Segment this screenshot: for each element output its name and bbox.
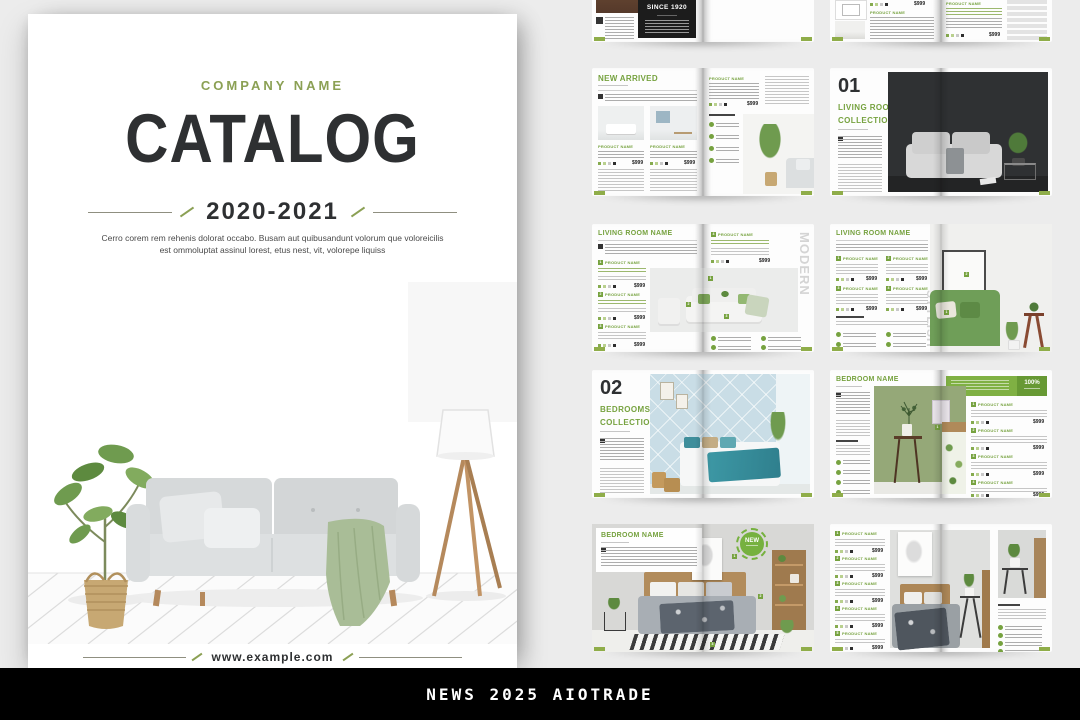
branch-arrangement-shape [896, 398, 922, 426]
bonsai-shape [1006, 132, 1030, 156]
text-placeholder [843, 470, 870, 475]
feature-icon [836, 332, 841, 337]
text-placeholder [843, 333, 876, 337]
product-name-label: PRODUCT NAME [893, 256, 928, 261]
divider-line [657, 15, 677, 16]
feature-icon [711, 336, 716, 341]
color-swatches [836, 278, 856, 281]
cover-website: www.example.com [212, 650, 334, 664]
product-item: 4PRODUCT NAME [886, 286, 928, 291]
text-placeholder [716, 159, 739, 163]
text-placeholder [601, 547, 697, 567]
spread-products-intro: $999 PRODUCT NAME PRODUCT NAME $999 [830, 0, 1052, 42]
price-label: $999 [634, 342, 645, 348]
divider-line [83, 657, 186, 658]
spread-bedrooms-collection: 02 BEDROOMS COLLECTION [592, 370, 814, 498]
pillow-shape [720, 437, 736, 448]
color-swatches [886, 278, 906, 281]
text-placeholder [835, 589, 885, 597]
feature-item [711, 345, 751, 350]
feature-item [886, 342, 926, 347]
product-name-label: PRODUCT NAME [709, 76, 744, 81]
photo-dark-living-room [888, 72, 1048, 192]
feature-item [998, 633, 1042, 638]
website-divider: www.example.com [28, 650, 517, 664]
color-swatches [598, 317, 618, 320]
vase-shape [902, 424, 912, 436]
page-number-tab [832, 647, 843, 651]
product-name-label: PRODUCT NAME [842, 606, 877, 611]
price-label: $999 [872, 573, 883, 579]
feature-item [711, 336, 751, 341]
slash-ornament [191, 653, 202, 662]
photo-bedroom-detail [890, 530, 990, 648]
shelf-line [775, 584, 803, 586]
feature-item [836, 460, 870, 465]
feature-item [709, 122, 739, 127]
price-label: $999 [866, 276, 877, 282]
product-name-label: PRODUCT NAME [978, 402, 1013, 407]
text-placeholder [835, 539, 885, 547]
product-name-label: PRODUCT NAME [842, 631, 877, 636]
text-placeholder [716, 147, 739, 151]
drop-cap [596, 17, 603, 24]
chapter-number: 01 [838, 76, 860, 96]
item-number-badge: 3 [836, 286, 841, 291]
page-number-tab [594, 37, 605, 41]
new-badge-label: NEW [740, 538, 764, 544]
divider-line [88, 212, 172, 213]
side-table-shape [604, 612, 626, 631]
green-pillow-shape [960, 302, 980, 318]
item-number-badge: 1 [835, 531, 840, 536]
shelf-plant-shape [777, 554, 787, 563]
text-placeholder [768, 337, 801, 341]
throw-shape [946, 148, 964, 174]
page-left: LIVING ROOM NAME 1PRODUCT NAME $999 2PRO… [830, 224, 941, 352]
price-label: $999 [866, 306, 877, 312]
product-name-label: PRODUCT NAME [605, 260, 640, 265]
product-item: 1PRODUCT NAME [836, 256, 878, 261]
text-placeholder [843, 490, 870, 495]
page-number-tab [832, 493, 843, 497]
mini-heading [836, 316, 864, 318]
text-placeholder [836, 244, 928, 252]
photo-plant-sofa [743, 114, 814, 194]
divider-line [598, 240, 697, 241]
spread-sheet: SINCE 1920 [592, 0, 814, 42]
color-swatches [711, 260, 731, 263]
page-number-tab [801, 647, 812, 651]
photo-number-badge: 1 [732, 554, 737, 559]
product-name-label: PRODUCT NAME [843, 256, 878, 261]
product-item: 3PRODUCT NAME [835, 581, 877, 586]
photo-sofa-green-accents: 1 2 3 [650, 268, 798, 332]
mini-heading [998, 604, 1020, 606]
text-placeholder [971, 410, 1047, 418]
text-placeholder [1024, 388, 1040, 391]
text-placeholder [768, 346, 801, 350]
text-placeholder [600, 438, 644, 462]
color-swatches [971, 473, 991, 476]
product-name-label: PRODUCT NAME [842, 581, 877, 586]
color-swatches [709, 103, 729, 106]
shelf-unit-shape [772, 550, 806, 630]
page-number-tab [1039, 493, 1050, 497]
photo-nightstand [998, 530, 1046, 598]
photo-green-sofa: 2 1 [930, 224, 1052, 352]
product-name-label: PRODUCT NAME [842, 531, 877, 536]
promo-percent-label: 100% [1017, 380, 1047, 386]
product-item: 4PRODUCT NAME [971, 480, 1013, 485]
page-left: SINCE 1920 [592, 0, 703, 42]
product-item: 1PRODUCT NAME [835, 531, 877, 536]
headboard-shape [1034, 538, 1046, 598]
spread-sheet: 02 BEDROOMS COLLECTION [592, 370, 814, 498]
feature-icon [709, 158, 714, 163]
pillow-shape [650, 582, 676, 597]
promo-percent-box: 100% [1017, 376, 1047, 396]
color-swatches [835, 600, 855, 603]
text-placeholder [971, 462, 1047, 470]
color-swatches [971, 447, 991, 450]
page-number-tab [594, 493, 605, 497]
text-placeholder [836, 294, 878, 304]
item-number-badge: 3 [598, 324, 603, 329]
text-placeholder [843, 343, 876, 347]
text-placeholder [1005, 642, 1042, 646]
cover-title: CATALOG [28, 98, 517, 180]
page-left: $999 PRODUCT NAME [830, 0, 941, 42]
item-number-badge: 4 [886, 286, 891, 291]
plant-pot-shape [965, 588, 974, 596]
feature-icon [711, 345, 716, 350]
product-item: 4PRODUCT NAME [711, 232, 753, 237]
text-placeholder [598, 332, 646, 340]
plant-shape [778, 620, 796, 636]
color-swatches [971, 494, 991, 497]
spread-sheet: 01 LIVING ROOMS COLLECTION [830, 68, 1052, 196]
item-number-badge: 2 [971, 428, 976, 433]
spread-bedroom-products: 1PRODUCT NAME $999 2PRODUCT NAME $999 3P… [830, 524, 1052, 652]
price-label: $999 [634, 315, 645, 321]
color-swatches [650, 162, 670, 165]
feature-icon [761, 345, 766, 350]
item-number-badge: 2 [598, 292, 603, 297]
plant-shape [606, 598, 622, 612]
product-name-label: PRODUCT NAME [605, 292, 640, 297]
page-number-tab [832, 191, 843, 195]
spread-living-room-2: LIVING ROOM NAME 1PRODUCT NAME $999 2PRO… [830, 224, 1052, 352]
spread-sheet: 1 2 3 BEDROOM NAME NEW [592, 524, 814, 652]
page-right: PRODUCT NAME $999 [703, 68, 814, 196]
chapter-title-line1: BEDROOMS [600, 405, 650, 414]
shelf-line [775, 604, 803, 606]
feature-item [709, 146, 739, 151]
text-placeholder [650, 169, 697, 193]
text-placeholder [835, 614, 885, 622]
spread-sheet: LIVING ROOM NAME 1PRODUCT NAME $999 2PRO… [592, 224, 814, 352]
spread-sheet: BEDROOM NAME 100% [830, 370, 1052, 498]
product-item: 5PRODUCT NAME [835, 631, 877, 636]
frame-art [842, 4, 860, 16]
wall-frame-shape [676, 394, 688, 409]
price-label: $999 [872, 623, 883, 629]
color-swatches [946, 34, 966, 37]
stool-leg-shape [1023, 314, 1032, 348]
photo-blue-bedroom [650, 374, 810, 494]
new-badge: NEW [740, 532, 764, 556]
text-placeholder [746, 545, 758, 548]
spread-grid: SINCE 1920 [560, 0, 1080, 668]
text-placeholder [1005, 626, 1042, 630]
text-placeholder [598, 308, 646, 314]
page-number-tab [594, 347, 605, 351]
vase-shape [790, 574, 799, 583]
text-placeholder [601, 542, 629, 544]
product-name-label: PRODUCT NAME [718, 232, 753, 237]
item-number-badge: 5 [835, 631, 840, 636]
page-left: NEW ARRIVED PRODUCT NAME $999 PRODUCT NA… [592, 68, 703, 196]
spread-new-arrived: NEW ARRIVED PRODUCT NAME $999 PRODUCT NA… [592, 68, 814, 196]
chapter-title-line2: COLLECTION [838, 116, 894, 125]
item-number-badge: 3 [971, 454, 976, 459]
feature-item [836, 480, 870, 485]
features-list [765, 76, 809, 104]
text-placeholder [1005, 650, 1042, 653]
text-placeholder [870, 17, 934, 39]
pillow-shape [702, 437, 718, 448]
price-label: $999 [989, 32, 1000, 38]
page-number-tab [1039, 347, 1050, 351]
product-item: 2PRODUCT NAME [886, 256, 928, 261]
text-placeholder [645, 20, 689, 34]
spread-living-collection: 01 LIVING ROOMS COLLECTION [830, 68, 1052, 196]
stool-seat-shape [1024, 313, 1044, 316]
since-badge-label: SINCE 1920 [638, 4, 696, 11]
page-number-tab [594, 647, 605, 651]
feature-icon [998, 633, 1003, 638]
photo-desk [650, 106, 697, 140]
item-number-badge: 1 [971, 402, 976, 407]
pillow-shape [904, 592, 922, 604]
product-name-label: PRODUCT NAME [842, 556, 877, 561]
text-placeholder [711, 240, 769, 246]
text-placeholder [600, 468, 644, 494]
item-number-badge: 3 [835, 581, 840, 586]
desk-shape [674, 132, 692, 134]
text-placeholder [946, 18, 1002, 30]
pillow-shape [678, 582, 704, 597]
price-label: $999 [916, 276, 927, 282]
since-badge-box: SINCE 1920 [638, 0, 696, 38]
color-swatches [836, 308, 856, 311]
price-label: $999 [872, 598, 883, 604]
text-placeholder [836, 264, 878, 274]
plant-shape [768, 412, 788, 446]
item-number-badge: 4 [971, 480, 976, 485]
catalog-cover: COMPANY NAME CATALOG 2020-2021 Cerro cor… [28, 14, 517, 668]
section-title: LIVING ROOM NAME [598, 230, 672, 237]
feature-icon [886, 332, 891, 337]
chapter-title-line2: COLLECTION [600, 418, 656, 427]
mini-heading [836, 440, 858, 442]
green-pillow-shape [698, 294, 710, 304]
price-label: $999 [759, 258, 770, 264]
price-label: $999 [914, 1, 925, 7]
feature-icon [709, 122, 714, 127]
spread-bedroom-2: 1 2 3 BEDROOM NAME NEW [592, 524, 814, 652]
feature-icon [709, 146, 714, 151]
stand-leg-shape [894, 439, 901, 483]
feature-icon [836, 480, 841, 485]
text-placeholder [598, 300, 646, 306]
striped-rug-shape [629, 634, 784, 650]
price-label: $999 [632, 160, 643, 166]
page-number-tab [801, 37, 812, 41]
photo-green-bedroom: 1 [874, 386, 966, 494]
price-label: $999 [684, 160, 695, 166]
text-placeholder [971, 436, 1047, 444]
wall-frame-shape [660, 382, 674, 400]
photo-gray-bedroom: 1 2 3 BEDROOM NAME NEW [592, 524, 814, 652]
feature-icon [886, 342, 891, 347]
text-placeholder [843, 460, 870, 465]
item-number-badge: 4 [711, 232, 716, 237]
product-name-label: PRODUCT NAME [843, 286, 878, 291]
spec-list [1007, 0, 1047, 40]
text-placeholder [1005, 634, 1042, 638]
feature-item [709, 134, 739, 139]
drop-cap [598, 244, 603, 249]
text-placeholder [886, 264, 928, 274]
color-swatches [598, 162, 618, 165]
feature-icon [998, 649, 1003, 652]
price-label: $999 [634, 283, 645, 289]
price-label: $999 [872, 548, 883, 554]
wall-canvas-shape [898, 532, 932, 576]
text-placeholder [836, 445, 870, 455]
section-title: BEDROOM NAME [601, 532, 664, 539]
divider-line [373, 212, 457, 213]
pattern-blanket-shape [894, 607, 950, 650]
feature-icon [998, 625, 1003, 630]
text-placeholder [998, 609, 1046, 621]
feature-item [761, 336, 801, 341]
text-placeholder [598, 268, 646, 274]
product-item: 2PRODUCT NAME [598, 292, 640, 297]
stool-leg-shape [1035, 314, 1044, 348]
text-placeholder [838, 129, 868, 131]
feature-icon [709, 134, 714, 139]
spread-living-room-1: LIVING ROOM NAME 1PRODUCT NAME $999 2PRO… [592, 224, 814, 352]
stand-leg-shape [914, 439, 921, 483]
product-name-label: PRODUCT NAME [946, 1, 981, 6]
text-placeholder [605, 94, 697, 102]
page-number-tab [801, 347, 812, 351]
page-number-tab [832, 347, 843, 351]
plant-pot-shape [1008, 340, 1020, 350]
side-table-shape [1004, 163, 1036, 180]
years-divider: 2020-2021 [28, 198, 517, 226]
page-number-tab [1039, 647, 1050, 651]
basket-shape [664, 478, 680, 492]
feature-item [709, 158, 739, 163]
spread-sheet: LIVING ROOM NAME 1PRODUCT NAME $999 2PRO… [830, 224, 1052, 352]
sofa-back-shape [912, 132, 950, 154]
pillow-shape [684, 437, 700, 448]
photo-number-badge: 2 [964, 272, 969, 277]
text-placeholder [836, 420, 870, 436]
color-swatches [870, 3, 890, 6]
photo-number-badge: 3 [710, 642, 715, 647]
floral-bedding-shape [942, 428, 966, 494]
item-number-badge: 2 [886, 256, 891, 261]
color-swatches [886, 308, 906, 311]
photo-number-badge: 3 [724, 314, 729, 319]
product-item: 2PRODUCT NAME [835, 556, 877, 561]
page-number-tab [1039, 37, 1050, 41]
item-number-badge: 1 [598, 260, 603, 265]
wall-frame-shape [932, 400, 950, 424]
feature-icon [836, 470, 841, 475]
color-swatches [971, 421, 991, 424]
shelf-unit-shape [982, 570, 990, 648]
footer-text: NEWS 2025 AIOTRADE [426, 685, 653, 704]
price-label: $999 [1033, 419, 1044, 425]
page-number-tab [832, 37, 843, 41]
feature-item [998, 641, 1042, 646]
headboard-shape [942, 422, 966, 432]
photo-bed [598, 106, 644, 140]
text-placeholder [598, 276, 646, 282]
section-title: NEW ARRIVED [598, 74, 658, 83]
page-number-tab [1039, 191, 1050, 195]
color-swatches [598, 285, 618, 288]
text-placeholder [886, 294, 928, 304]
slash-ornament [351, 207, 365, 218]
plant-pot-shape [1010, 558, 1020, 567]
text-placeholder [598, 85, 628, 87]
text-placeholder [718, 346, 751, 350]
shelf-line [775, 564, 803, 566]
spread-sheet: $999 PRODUCT NAME PRODUCT NAME $999 [830, 0, 1052, 42]
vertical-word: MODERN [797, 232, 812, 296]
price-label: $999 [872, 645, 883, 651]
product-item: 1PRODUCT NAME [598, 260, 640, 265]
slash-ornament [180, 207, 194, 218]
divider-line [359, 657, 462, 658]
photo-frame [835, 0, 867, 20]
page-number-tab [801, 191, 812, 195]
table-leg-shape [1021, 570, 1026, 594]
feature-item [836, 332, 876, 337]
chapter-number: 02 [600, 378, 622, 398]
photo-number-badge: 1 [944, 310, 949, 315]
page-number-tab [801, 493, 812, 497]
wall-art-shape [656, 111, 670, 123]
section-title: LIVING ROOM NAME [836, 230, 910, 237]
photo-number-badge: 2 [686, 302, 691, 307]
color-swatches [835, 550, 855, 553]
feature-item [886, 332, 926, 337]
divider-line [598, 90, 697, 91]
throw-shape [744, 294, 769, 318]
item-number-badge: 1 [836, 256, 841, 261]
product-name-label: PRODUCT NAME [870, 10, 905, 15]
text-placeholder [893, 333, 926, 337]
mini-heading [709, 114, 735, 116]
